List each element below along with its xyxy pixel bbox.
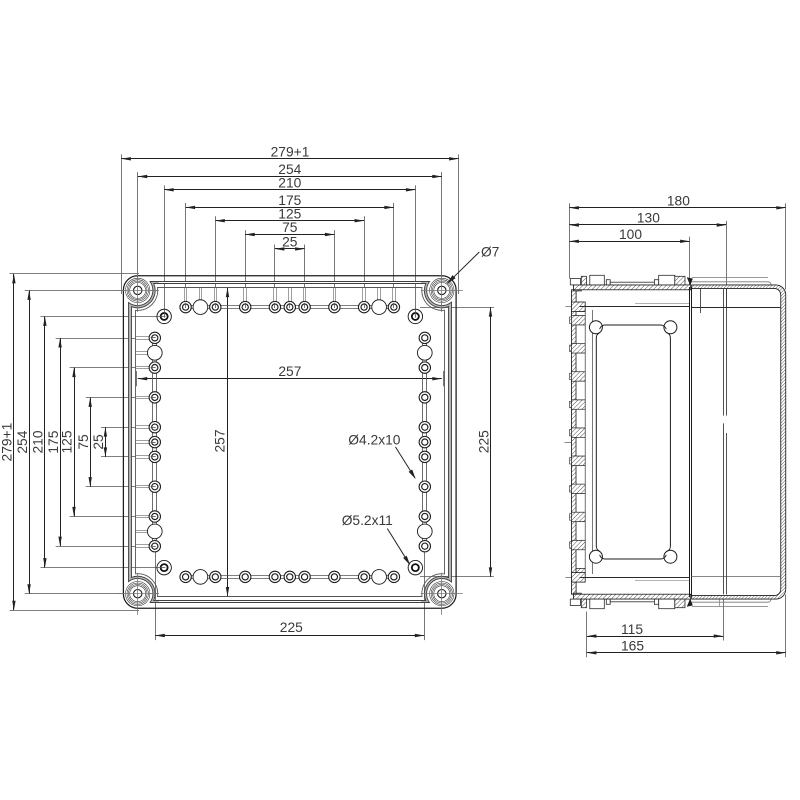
svg-text:279+1: 279+1 [0, 423, 15, 462]
svg-text:175: 175 [46, 430, 61, 453]
svg-text:25: 25 [91, 434, 106, 450]
svg-text:165: 165 [621, 639, 644, 654]
svg-text:125: 125 [278, 206, 301, 221]
svg-text:125: 125 [60, 430, 75, 453]
svg-text:225: 225 [280, 620, 303, 635]
svg-text:130: 130 [637, 211, 660, 226]
svg-text:115: 115 [621, 622, 643, 637]
svg-text:25: 25 [282, 235, 298, 250]
svg-text:210: 210 [31, 430, 46, 453]
svg-text:210: 210 [278, 176, 301, 191]
svg-text:257: 257 [213, 429, 228, 452]
svg-text:180: 180 [667, 194, 690, 209]
svg-text:Ø5.2x11: Ø5.2x11 [342, 513, 393, 528]
svg-text:257: 257 [278, 364, 301, 379]
svg-text:75: 75 [76, 434, 91, 450]
svg-text:Ø7: Ø7 [481, 245, 499, 260]
svg-text:225: 225 [476, 430, 491, 453]
svg-text:254: 254 [15, 430, 30, 453]
svg-text:100: 100 [619, 227, 642, 242]
svg-text:279+1: 279+1 [271, 145, 310, 160]
svg-text:Ø4.2x10: Ø4.2x10 [348, 432, 400, 447]
svg-text:75: 75 [282, 220, 298, 235]
